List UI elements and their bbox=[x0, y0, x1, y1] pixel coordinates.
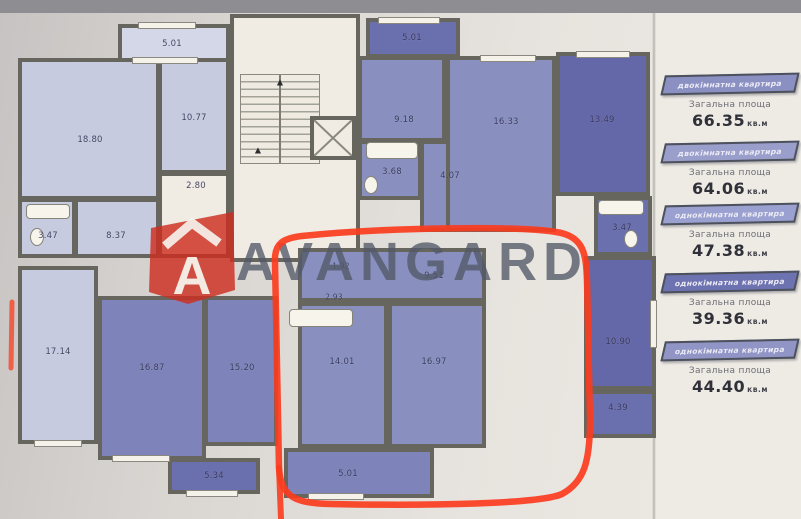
bathtub-icon bbox=[598, 200, 644, 215]
total-area-label: Загальна площа bbox=[660, 168, 800, 178]
room-10-90 bbox=[584, 256, 656, 390]
stairs-icon bbox=[240, 74, 320, 164]
legend-item-apartment-4: однокімнатна квартира Загальна площа 39.… bbox=[660, 270, 800, 328]
window bbox=[34, 440, 82, 447]
floorplan-photo: ▲ ▲ 5.01 18.80 10.77 2.80 3.47 8.37 17.1… bbox=[0, 0, 801, 519]
room-area-label: 3.68 bbox=[382, 167, 402, 177]
room-area-label: 5.34 bbox=[204, 471, 224, 481]
total-area-value: 64.06 bbox=[692, 179, 745, 198]
room-18-80 bbox=[18, 58, 160, 200]
elevator-shaft bbox=[310, 116, 356, 160]
room-area-label: 5.01 bbox=[402, 33, 422, 43]
room-9-18 bbox=[358, 56, 446, 142]
window bbox=[138, 22, 196, 29]
apartment-type-banner: двокімнатна квартира bbox=[660, 141, 799, 164]
window bbox=[308, 493, 364, 500]
photo-background-edge bbox=[0, 0, 801, 13]
room-16-87 bbox=[98, 296, 206, 460]
room-area-label: 5.01 bbox=[338, 469, 358, 479]
apartment-type-banner: однокімнатна квартира bbox=[660, 339, 799, 362]
room-area-label: 16.87 bbox=[139, 363, 164, 373]
room-area-label: 16.33 bbox=[493, 117, 518, 127]
window bbox=[186, 490, 238, 497]
area-unit: кв.м bbox=[747, 119, 768, 128]
room-area-label: 18.80 bbox=[77, 135, 102, 145]
room-area-label: 3.47 bbox=[38, 231, 58, 241]
room-16-33 bbox=[446, 56, 556, 232]
room-area-label: 8.37 bbox=[106, 231, 126, 241]
total-area-value: 47.38 bbox=[692, 241, 745, 260]
window bbox=[650, 300, 657, 348]
room-4-39 bbox=[584, 390, 656, 438]
area-unit: кв.м bbox=[747, 385, 768, 394]
room-area-label: 5.01 bbox=[162, 39, 182, 49]
total-area-value: 39.36 bbox=[692, 309, 745, 328]
total-area-value: 44.40 bbox=[692, 377, 745, 396]
total-area-label: Загальна площа bbox=[660, 298, 800, 308]
watermark-brand-text: AVANGARD bbox=[236, 231, 588, 293]
room-area-label: 4.07 bbox=[440, 171, 460, 181]
room-area-label: 15.20 bbox=[229, 363, 254, 373]
total-area-value: 66.35 bbox=[692, 111, 745, 130]
window bbox=[112, 455, 170, 462]
legend-item-apartment-2: двокімнатна квартира Загальна площа 64.0… bbox=[660, 140, 800, 198]
total-area-label: Загальна площа bbox=[660, 366, 800, 376]
window bbox=[132, 57, 198, 64]
total-area-label: Загальна площа bbox=[660, 230, 800, 240]
room-area-label: 13.49 bbox=[589, 115, 614, 125]
bathtub-icon bbox=[366, 142, 418, 159]
room-area-label: 17.14 bbox=[45, 347, 70, 357]
avangard-logo-icon: A bbox=[146, 206, 238, 306]
radiator-icon bbox=[289, 309, 353, 327]
room-balcony-circled bbox=[284, 448, 434, 498]
room-area-label: 16.97 bbox=[421, 357, 446, 367]
stairs-up-arrow-icon: ▲ bbox=[277, 78, 283, 87]
elevator-cross-icon bbox=[314, 120, 352, 156]
room-area-label: 10.90 bbox=[605, 337, 630, 347]
window bbox=[576, 51, 630, 58]
legend-item-apartment-5: однокімнатна квартира Загальна площа 44.… bbox=[660, 338, 800, 396]
room-area-label: 4.39 bbox=[608, 403, 628, 413]
room-area-label: 2.80 bbox=[186, 181, 206, 191]
legend-item-apartment-3: однокімнатна квартира Загальна площа 47.… bbox=[660, 202, 800, 260]
bathtub-icon bbox=[26, 204, 70, 219]
toilet-icon bbox=[364, 176, 378, 194]
stairs-divider bbox=[279, 75, 281, 163]
window bbox=[378, 17, 440, 24]
apartment-type-banner: однокімнатна квартира bbox=[660, 271, 799, 294]
room-area-label: 2.93 bbox=[325, 293, 343, 302]
apartment-type-banner: однокімнатна квартира bbox=[660, 203, 799, 226]
legend-item-apartment-1: двокімнатна квартира Загальна площа 66.3… bbox=[660, 72, 800, 130]
total-area-label: Загальна площа bbox=[660, 100, 800, 110]
room-area-label: 3.47 bbox=[612, 223, 632, 233]
area-unit: кв.м bbox=[747, 249, 768, 258]
window bbox=[480, 55, 536, 62]
svg-text:A: A bbox=[173, 246, 212, 306]
room-16-97 bbox=[388, 302, 486, 448]
area-unit: кв.м bbox=[747, 187, 768, 196]
room-area-label: 10.77 bbox=[181, 113, 206, 123]
apartment-type-banner: двокімнатна квартира bbox=[660, 73, 799, 96]
stairs-up-arrow-icon: ▲ bbox=[255, 146, 261, 155]
area-unit: кв.м bbox=[747, 317, 768, 326]
room-area-label: 9.18 bbox=[394, 115, 414, 125]
room-area-label: 14.01 bbox=[329, 357, 354, 367]
